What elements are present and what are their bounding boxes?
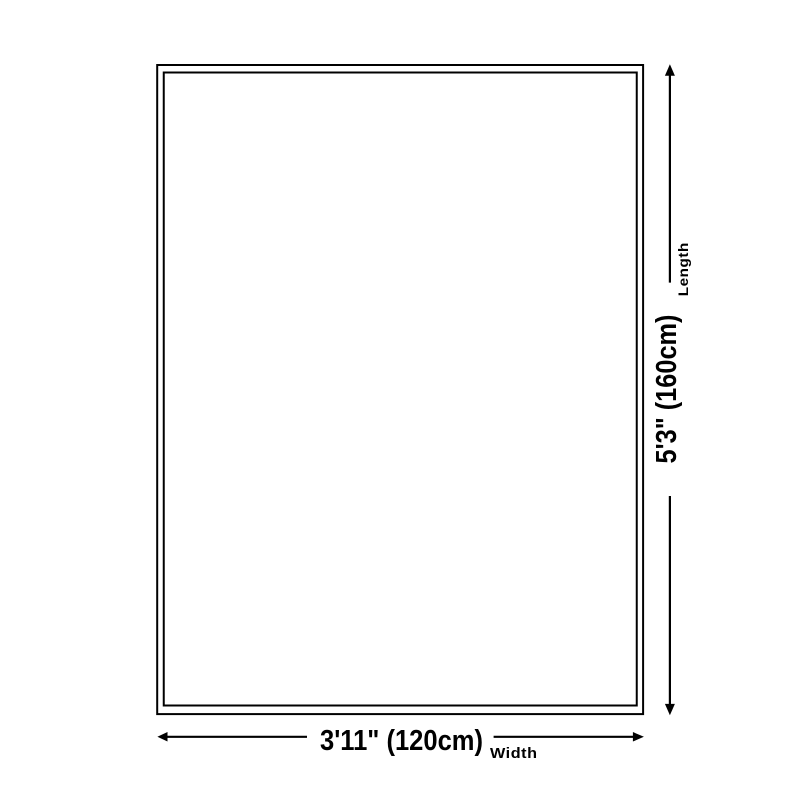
svg-text:Width: Width bbox=[490, 745, 538, 762]
svg-text:Length: Length bbox=[675, 242, 691, 296]
svg-text:3'11" (120cm): 3'11" (120cm) bbox=[320, 725, 483, 757]
svg-text:5'3" (160cm): 5'3" (160cm) bbox=[651, 315, 683, 464]
